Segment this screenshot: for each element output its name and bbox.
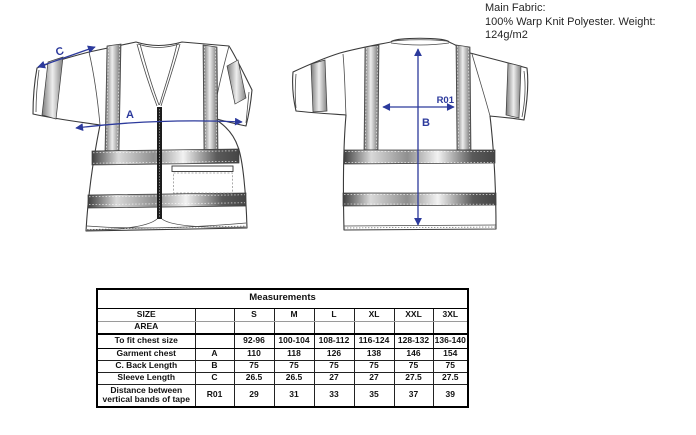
row-label: C. Back Length (97, 360, 195, 372)
table-row: C. Back Length B 75 75 75 75 75 75 (97, 360, 468, 372)
front-lapel-right (160, 44, 181, 106)
cell: 29 (234, 384, 274, 407)
cell: 27 (314, 372, 354, 384)
front-armhole-left (89, 52, 100, 125)
cell: 126 (314, 348, 354, 360)
back-left-sleeve-band (311, 60, 327, 112)
measurements-table: Measurements SIZE S M L XL XXL 3XL AREA (96, 288, 469, 408)
back-hem-line (344, 225, 496, 226)
cell: 26.5 (274, 372, 314, 384)
cell: 146 (394, 348, 433, 360)
label-r01: R01 (437, 95, 455, 106)
label-c: C (54, 45, 65, 59)
code-header (195, 308, 234, 321)
cell: 75 (394, 360, 433, 372)
front-left-sleeve-band (42, 57, 63, 119)
cell: 138 (354, 348, 394, 360)
label-b: B (422, 117, 430, 129)
table-row: SIZE S M L XL XXL 3XL (97, 308, 468, 321)
cell: 75 (274, 360, 314, 372)
row-label: Distance between vertical bands of tape (97, 384, 195, 407)
garment-diagram: A C B R01 (0, 0, 540, 252)
back-upper-horizontal-band (344, 150, 495, 164)
cell: 26.5 (234, 372, 274, 384)
cell: 110 (234, 348, 274, 360)
size-col-xxl: XXL (394, 308, 433, 321)
row-label: Garment chest (97, 348, 195, 360)
cell: 33 (314, 384, 354, 407)
cell: 27.5 (433, 372, 468, 384)
cell: 27 (354, 372, 394, 384)
back-right-sleeve-band (506, 63, 521, 118)
cell: 27.5 (394, 372, 433, 384)
back-armhole-right (472, 54, 490, 116)
front-lapel-left (137, 44, 159, 106)
sleeve-length-arrow (38, 47, 95, 67)
back-sleeve-hem-right (522, 71, 525, 117)
cell: 92-96 (234, 334, 274, 348)
cell: 39 (433, 384, 468, 407)
cell: 35 (354, 384, 394, 407)
cell: 75 (354, 360, 394, 372)
cell: 31 (274, 384, 314, 407)
back-collar (391, 40, 449, 45)
row-label: To fit chest size (97, 334, 195, 348)
size-col-m: M (274, 308, 314, 321)
back-armhole-left (343, 54, 346, 115)
table-title: Measurements (97, 289, 468, 308)
cell: 75 (314, 360, 354, 372)
cell: 75 (234, 360, 274, 372)
spec-sheet: Main Fabric: 100% Warp Knit Polyester. W… (0, 0, 696, 435)
row-code (195, 334, 234, 348)
cell: 100-104 (274, 334, 314, 348)
cell: 116-124 (354, 334, 394, 348)
front-right-sleeve-band (227, 60, 246, 104)
back-vest-view: B R01 (293, 38, 528, 230)
front-pocket-body (174, 173, 233, 193)
cell: 154 (433, 348, 468, 360)
front-upper-horizontal-band (92, 149, 239, 165)
size-header: SIZE (97, 308, 195, 321)
cell: 75 (433, 360, 468, 372)
size-col-3xl: 3XL (433, 308, 468, 321)
front-vest-view: A C (33, 42, 252, 231)
cell: 136-140 (433, 334, 468, 348)
row-label: Sleeve Length (97, 372, 195, 384)
table-row: Garment chest A 110 118 126 138 146 154 (97, 348, 468, 360)
table-row: Sleeve Length C 26.5 26.5 27 27 27.5 27.… (97, 372, 468, 384)
cell: 128-132 (394, 334, 433, 348)
area-header: AREA (97, 321, 195, 334)
cell: 108-112 (314, 334, 354, 348)
table-row: Distance between vertical bands of tape … (97, 384, 468, 407)
front-pocket-flap (172, 166, 233, 172)
table-row: To fit chest size 92-96 100-104 108-112 … (97, 334, 468, 348)
size-col-l: L (314, 308, 354, 321)
table-row: AREA (97, 321, 468, 334)
row-code: B (195, 360, 234, 372)
back-sleeve-hem-left (295, 74, 296, 108)
front-sleeve-hem-left (36, 70, 39, 112)
cell: 118 (274, 348, 314, 360)
label-a: A (126, 109, 134, 121)
size-col-xl: XL (354, 308, 394, 321)
size-col-s: S (234, 308, 274, 321)
row-code: C (195, 372, 234, 384)
row-code: A (195, 348, 234, 360)
cell: 37 (394, 384, 433, 407)
row-code: R01 (195, 384, 234, 407)
